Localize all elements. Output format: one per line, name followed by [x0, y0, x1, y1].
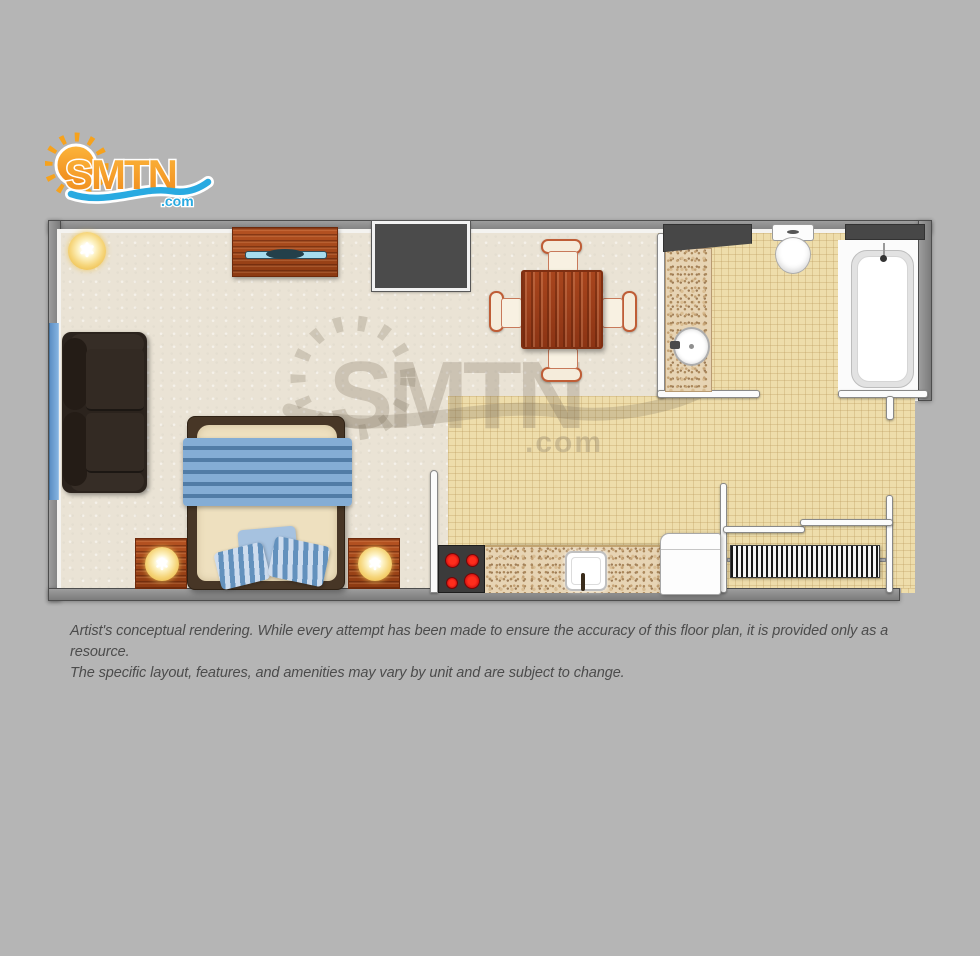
closet-wall-top-a — [723, 526, 805, 533]
kitchen-sink — [565, 551, 607, 591]
entry-floor-patch — [901, 588, 915, 593]
bed-blanket — [183, 438, 352, 506]
louvered-closet-doors — [730, 545, 880, 578]
dining-chair-east-seat — [602, 298, 623, 328]
sofa-seat-cushion-1 — [86, 349, 144, 411]
wall-closet — [372, 221, 470, 291]
bathtub-window — [845, 224, 925, 240]
kitchen-divider-wall — [430, 470, 438, 593]
burner — [446, 577, 458, 589]
burner — [445, 553, 460, 568]
lamp-flower-icon: ✻ — [368, 556, 382, 573]
toilet — [772, 224, 814, 274]
logo-tld: .com — [161, 193, 194, 209]
tv-center-icon — [266, 249, 304, 259]
watermark-tld: .com — [525, 426, 603, 459]
disclaimer-line-2: The specific layout, features, and ameni… — [70, 663, 922, 684]
refrigerator — [660, 533, 721, 595]
ceiling-lamp: ✻ — [68, 232, 106, 270]
sofa — [62, 332, 147, 493]
vanity-faucet-icon — [670, 341, 680, 349]
disclaimer: Artist's conceptual rendering. While eve… — [70, 621, 922, 684]
toilet-bowl — [775, 237, 811, 274]
wall-right — [918, 220, 932, 401]
floor-plan: SMTN .com ✻ — [48, 220, 932, 601]
disclaimer-line-1: Artist's conceptual rendering. While eve… — [70, 621, 922, 663]
closet-wall-right — [886, 495, 893, 593]
stove-cooktop — [438, 545, 485, 593]
nightstand-right: ✻ — [348, 538, 400, 589]
toilet-flush-button-icon — [787, 230, 799, 234]
kitchen-counter — [485, 545, 661, 593]
bathroom-wall-left — [657, 233, 665, 398]
dining-chair-west-seat — [501, 298, 522, 328]
bathroom-vanity — [665, 248, 712, 392]
bathroom-wall-bottom-right — [838, 390, 928, 398]
sofa-seat-cushion-2 — [86, 413, 144, 473]
smtn-logo: SMTN .com — [45, 126, 223, 222]
window — [49, 323, 59, 500]
bathtub — [851, 250, 914, 388]
sofa-back-cushion-2 — [63, 412, 87, 486]
table-lamp-left: ✻ — [145, 547, 179, 581]
bathtub-wall-stub — [886, 396, 894, 420]
bed — [187, 416, 345, 590]
tv-dresser — [232, 227, 338, 277]
nightstand-left: ✻ — [135, 538, 187, 589]
table-lamp-right: ✻ — [358, 547, 392, 581]
closet-wall-left — [720, 483, 727, 593]
burner — [466, 554, 479, 567]
dining-chair-north-seat — [548, 251, 578, 272]
dining-chair-south — [541, 367, 582, 382]
tub-faucet-icon — [880, 255, 887, 262]
lamp-flower-icon: ✻ — [79, 241, 96, 261]
kitchen-faucet-icon — [581, 573, 585, 591]
dining-chair-east — [622, 291, 637, 332]
sofa-back-cushion-1 — [63, 338, 87, 410]
dining-chair-south-seat — [548, 348, 578, 369]
dining-table — [521, 270, 603, 349]
burner — [464, 573, 480, 589]
lamp-flower-icon: ✻ — [155, 556, 169, 573]
page: { "page": { "background_color": "#b5b5b5… — [0, 0, 980, 956]
closet-wall-top-b — [800, 519, 893, 526]
